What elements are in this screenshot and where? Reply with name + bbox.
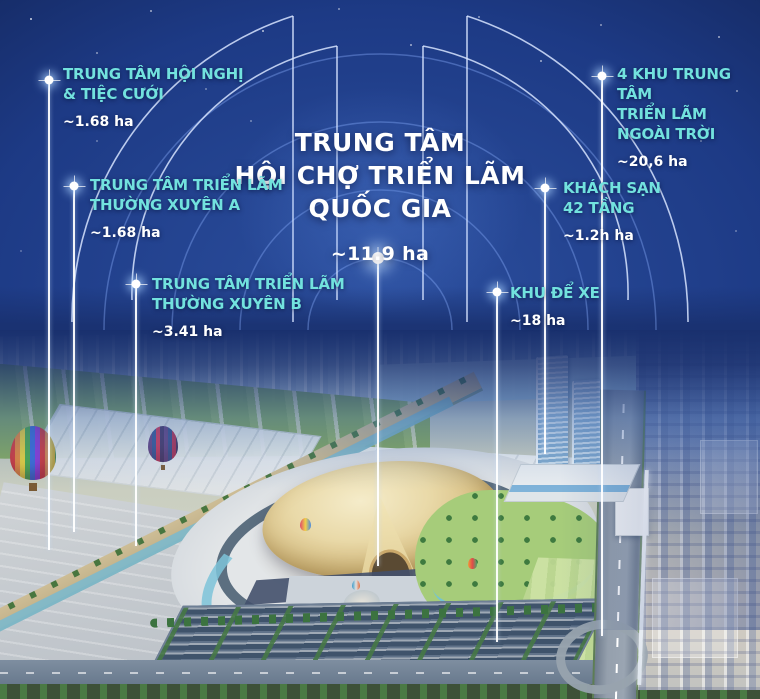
leader-line [135, 284, 137, 546]
aerial-render [0, 330, 760, 699]
callout-line: TRUNG TÂM HỘI NGHỊ [63, 64, 243, 84]
callout-area-value: ~1.68 ha [63, 112, 243, 132]
leader-line [601, 76, 603, 636]
callout-hoi-nghi-tiec-cuoi: TRUNG TÂM HỘI NGHỊ & TIỆC CƯỚI ~1.68 ha [63, 64, 243, 132]
callout-4-khu-trien-lam-ngoai-troi: 4 KHU TRUNG TÂM TRIỂN LÃM NGOÀI TRỜI ~20… [617, 64, 760, 172]
callout-line: THƯỜNG XUYÊN A [90, 195, 283, 215]
star-marker [132, 280, 141, 289]
leader-line [496, 292, 498, 642]
callout-area-value: ~18 ha [510, 311, 600, 331]
title-line: TRUNG TÂM [190, 126, 570, 159]
callout-trien-lam-thuong-xuyen-a: TRUNG TÂM TRIỂN LÃM THƯỜNG XUYÊN A ~1.68… [90, 175, 283, 243]
callout-line: TRUNG TÂM TRIỂN LÃM [152, 274, 345, 294]
callout-khu-de-xe: KHU ĐỂ XE ~18 ha [510, 283, 600, 331]
callout-line: THƯỜNG XUYÊN B [152, 294, 345, 314]
callout-khach-san-42-tang: KHÁCH SẠN 42 TẦNG ~1.2h ha [563, 178, 661, 246]
callout-line: 42 TẦNG [563, 198, 661, 218]
callout-line: TRIỂN LÃM [617, 104, 760, 124]
horizon-haze [0, 330, 760, 490]
callout-area-value: ~20,6 ha [617, 152, 760, 172]
star-marker [598, 72, 607, 81]
exhibition-center-poster: TRUNG TÂM HỘI CHỢ TRIỂN LÃM QUỐC GIA ~11… [0, 0, 760, 699]
leader-line [48, 80, 50, 550]
leader-line-center [377, 258, 379, 566]
callout-line: NGOÀI TRỜI [617, 124, 760, 144]
callout-line: KHU ĐỂ XE [510, 283, 600, 303]
star-marker [493, 288, 502, 297]
callout-line: 4 KHU TRUNG TÂM [617, 64, 760, 104]
callout-line: TRUNG TÂM TRIỂN LÃM [90, 175, 283, 195]
callout-area-value: ~1.68 ha [90, 223, 283, 243]
callout-trien-lam-thuong-xuyen-b: TRUNG TÂM TRIỂN LÃM THƯỜNG XUYÊN B ~3.41… [152, 274, 345, 342]
callout-line: KHÁCH SẠN [563, 178, 661, 198]
callout-area-value: ~1.2h ha [563, 226, 661, 246]
mini-balloon [300, 518, 311, 531]
mini-balloon [352, 580, 360, 590]
star-marker [70, 182, 79, 191]
leader-line [73, 186, 75, 532]
callout-area-value: ~3.41 ha [152, 322, 345, 342]
callout-line: & TIỆC CƯỚI [63, 84, 243, 104]
star-marker [45, 76, 54, 85]
mini-balloon [468, 558, 477, 569]
